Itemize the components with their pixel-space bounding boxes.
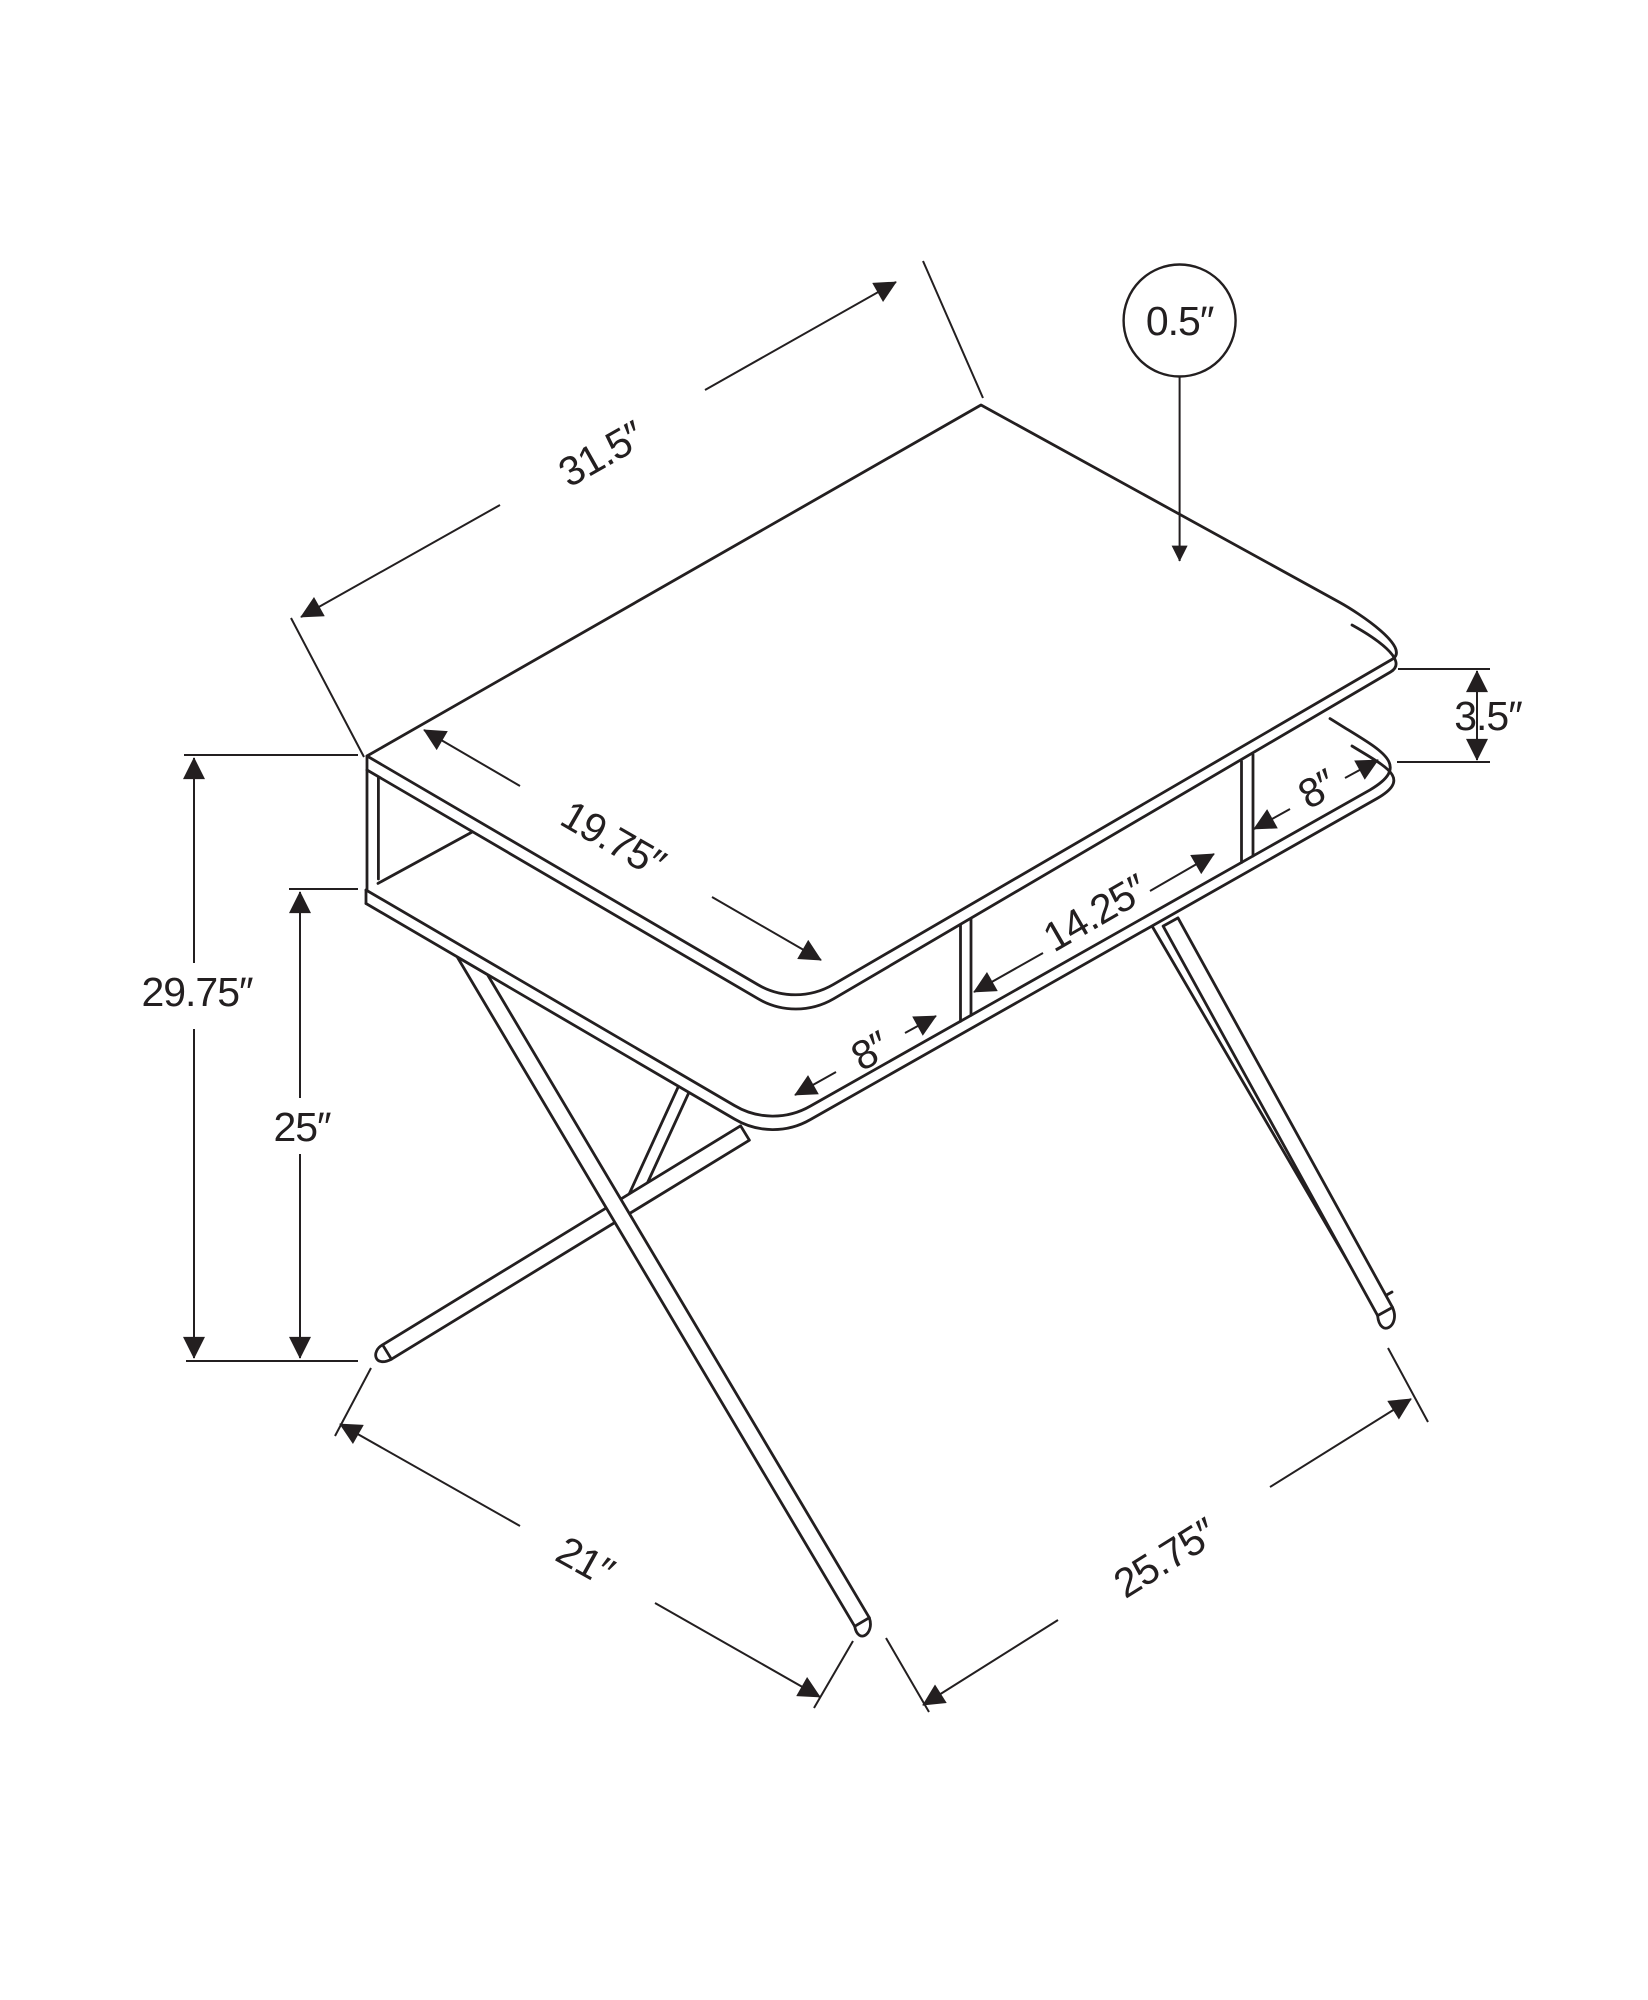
svg-text:25″: 25″ bbox=[273, 1104, 331, 1150]
svg-text:0.5″: 0.5″ bbox=[1146, 298, 1214, 344]
svg-text:29.75″: 29.75″ bbox=[141, 969, 253, 1015]
svg-text:3.5″: 3.5″ bbox=[1454, 693, 1522, 739]
